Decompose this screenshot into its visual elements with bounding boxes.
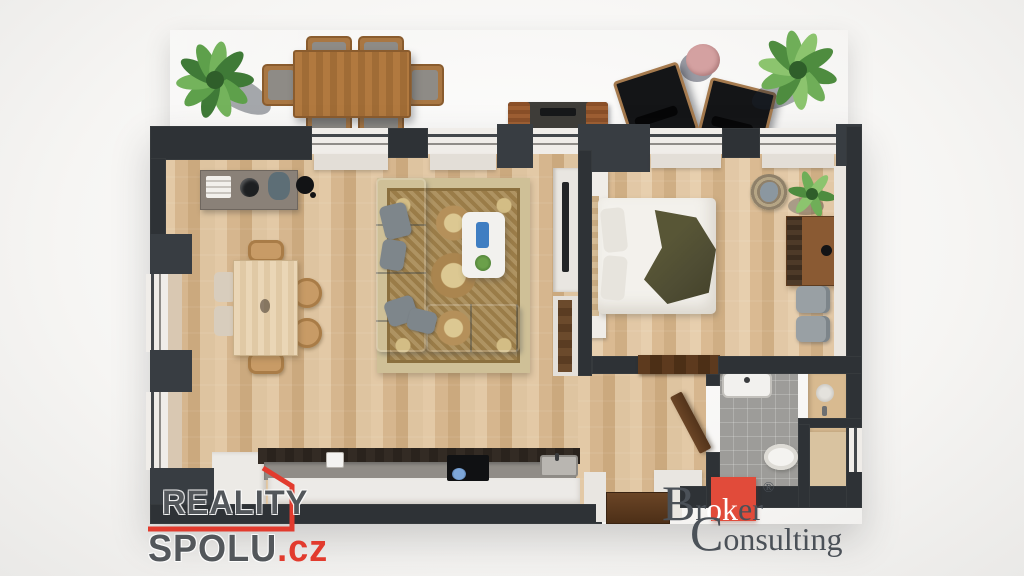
window-reveal	[168, 274, 182, 350]
bedroom-armchair	[796, 316, 830, 342]
bed-throw-blanket	[626, 210, 716, 304]
decor-sphere	[821, 245, 832, 256]
watermark-spolu: SPOLU.cz	[148, 528, 328, 571]
window-left	[146, 274, 168, 352]
window-bedroom	[760, 128, 836, 154]
window-living	[533, 128, 578, 154]
bedroom-dresser	[786, 216, 838, 286]
decor-vase	[268, 172, 290, 200]
watermark-reality: REALITY	[162, 484, 308, 523]
vanity-faucet	[822, 406, 827, 416]
coffee-table	[462, 212, 505, 278]
bathtub	[722, 372, 772, 398]
bedroom-wall-face	[834, 166, 846, 356]
bed-pillow	[600, 207, 628, 253]
bedroom-armchair	[796, 286, 830, 313]
terrace-side-table-pink	[686, 44, 720, 76]
wall-bedroom-bottom	[718, 356, 862, 374]
sofa-pillow	[379, 238, 407, 271]
floor-lamp	[296, 176, 314, 194]
wall-divider-living-bedroom	[578, 150, 592, 376]
watermark-reality-text: REALITY	[162, 484, 308, 522]
toilet	[764, 444, 798, 470]
tv-screen	[562, 182, 569, 272]
toaster	[326, 452, 344, 468]
dining-table	[233, 260, 298, 356]
coffee-table-plant	[475, 255, 491, 271]
entrance-door	[606, 492, 670, 524]
watermark-consulting: Consulting	[690, 504, 842, 562]
decor-tray-blue	[476, 222, 489, 248]
consulting-initial: C	[690, 505, 723, 561]
wall-pillar	[150, 234, 192, 274]
consulting-rest: onsulting	[723, 521, 842, 557]
decor-bowl	[240, 178, 259, 197]
wall-top	[388, 128, 428, 158]
wall-top	[150, 126, 312, 160]
floorplan-render: REALITY SPOLU.cz Broker® Consulting	[0, 0, 1024, 576]
cooking-pot	[452, 468, 466, 480]
wall-pillar	[150, 350, 192, 392]
window-bedroom	[650, 128, 722, 154]
vanity-sink	[816, 384, 834, 402]
potted-plant-terrace-right	[742, 22, 847, 127]
kitchen-sink	[540, 455, 578, 477]
niche-shelf	[558, 300, 572, 372]
window-sill	[314, 154, 388, 170]
grill-burners	[540, 108, 576, 116]
book-stack	[206, 176, 231, 198]
rug-decor	[760, 182, 778, 202]
window-sill	[651, 154, 721, 168]
terrace-dining-table	[293, 50, 411, 118]
wall-pillar	[497, 124, 533, 168]
window-sill	[430, 154, 496, 170]
watermark-spolu-text: SPOLU	[148, 528, 277, 570]
dining-chair	[248, 240, 284, 262]
sofa-seat-section	[426, 304, 520, 352]
terrace-chair	[406, 64, 444, 106]
registered-mark: ®	[763, 480, 774, 496]
watermark-spolu-tld: .cz	[277, 528, 328, 570]
window-living	[428, 128, 497, 154]
wall-left	[150, 158, 166, 236]
wall-bathroom-partition	[798, 424, 810, 508]
window-living	[312, 128, 388, 154]
wall-bathroom	[706, 374, 720, 386]
window-sill	[762, 154, 834, 168]
wall-bedroom-bottom	[592, 356, 640, 374]
bed-pillow	[600, 255, 628, 301]
bed	[598, 198, 716, 314]
bedroom-sliding-door	[638, 355, 720, 374]
wall-top	[722, 128, 760, 158]
